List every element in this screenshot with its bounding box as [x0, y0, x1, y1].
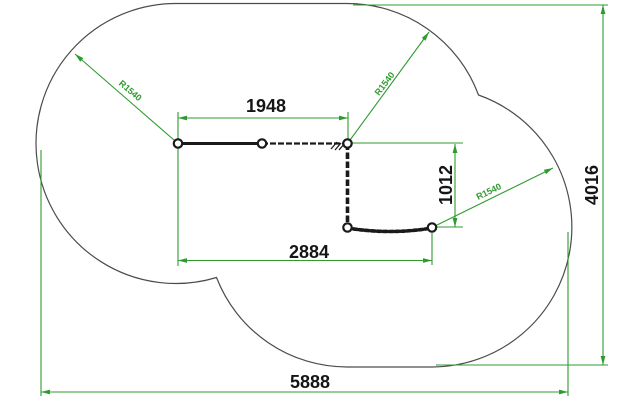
rail-chain-segment — [348, 228, 433, 232]
dimension-value-5888: 5888 — [290, 373, 330, 391]
arrow-1948-right — [339, 116, 348, 121]
post-marker-1 — [174, 139, 182, 147]
dimension-value-1948: 1948 — [246, 97, 286, 115]
post-marker-3 — [343, 139, 351, 147]
arrow-1012-top — [453, 144, 458, 153]
arrow-5888-left — [41, 390, 50, 395]
dimension-value-2884: 2884 — [289, 243, 329, 261]
dimension-value-1012: 1012 — [437, 165, 455, 205]
arrow-1012-bottom — [453, 218, 458, 227]
dimension-value-4016: 4016 — [583, 165, 601, 205]
equipment-structure — [174, 139, 436, 231]
radius-leader-upper-right — [348, 32, 430, 144]
post-marker-4 — [343, 223, 351, 231]
arrow-5888-right — [559, 390, 568, 395]
dimension-linework — [41, 5, 608, 396]
post-marker-2 — [258, 139, 266, 147]
arrow-4016-bottom — [601, 356, 606, 365]
arrow-radius-upper-right — [422, 32, 429, 41]
radius-leader-upper-left — [75, 54, 178, 144]
technical-drawing-canvas: 1948 2884 5888 1012 4016 R1540 R1540 R15… — [0, 0, 638, 402]
post-marker-5 — [428, 223, 436, 231]
arrow-4016-top — [601, 5, 606, 14]
arrow-1948-left — [178, 116, 187, 121]
drawing-linework — [0, 0, 638, 402]
arrow-2884-right — [423, 258, 432, 263]
arrow-2884-left — [178, 258, 187, 263]
arrow-radius-lower-right — [544, 168, 553, 174]
